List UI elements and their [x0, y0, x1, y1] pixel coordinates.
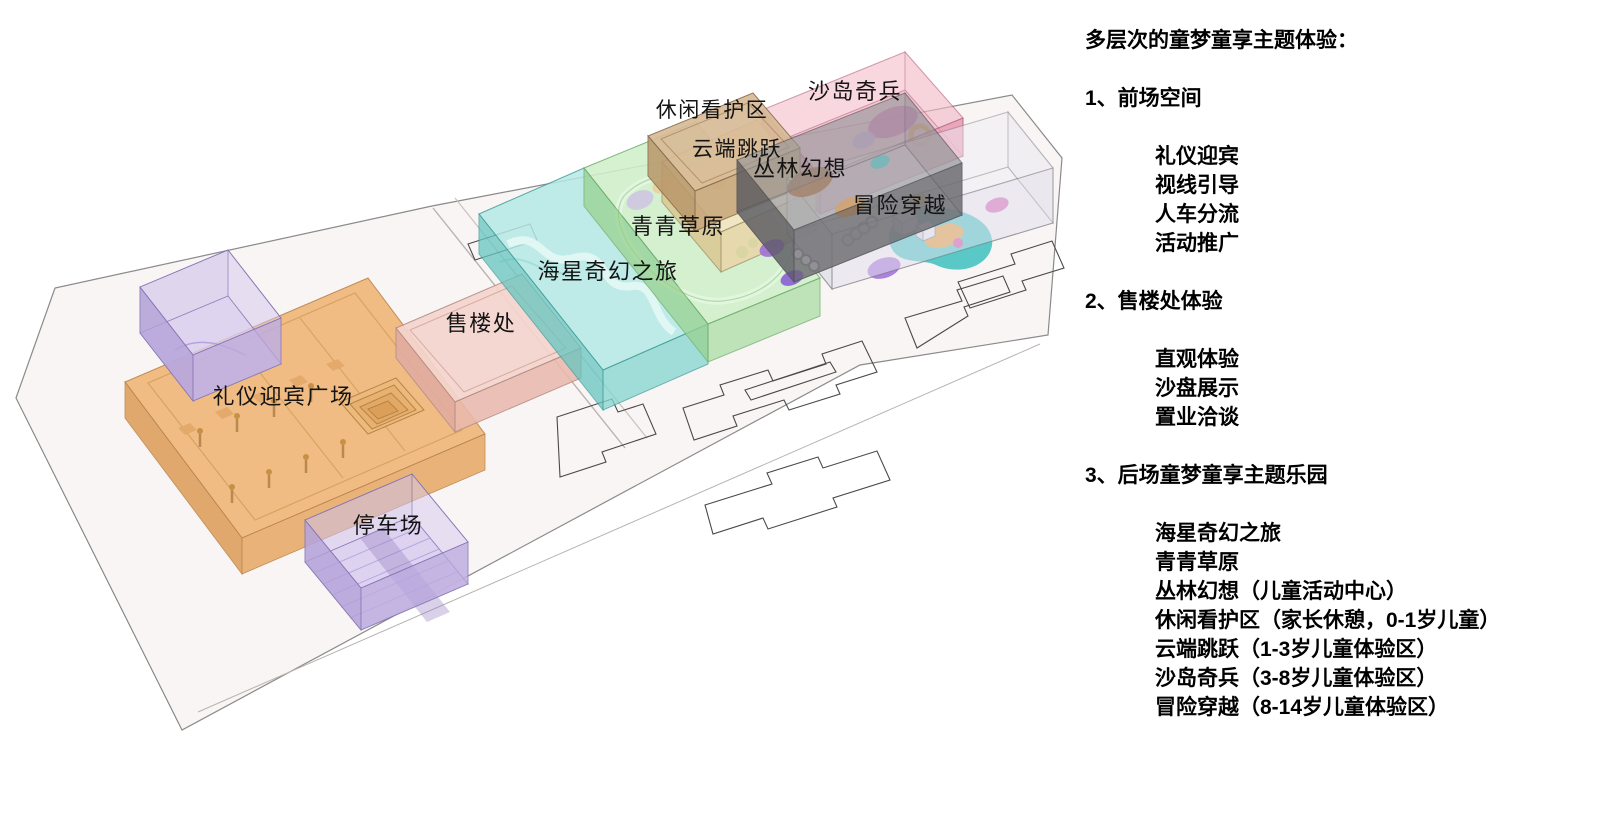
label-care-zone: 休闲看护区	[656, 98, 769, 122]
label-sales-office: 售楼处	[446, 311, 517, 336]
label-parking: 停车场	[353, 513, 424, 538]
legend-item: 沙岛奇兵（3-8岁儿童体验区）	[1155, 664, 1575, 693]
legend-heading: 2、售楼处体验	[1085, 287, 1575, 316]
legend-title: 多层次的童梦童享主题体验：	[1085, 26, 1575, 55]
label-sand-island: 沙岛奇兵	[808, 79, 902, 104]
legend-item: 海星奇幻之旅	[1155, 519, 1575, 548]
legend-item: 冒险穿越（8-14岁儿童体验区）	[1155, 693, 1575, 722]
legend-panel: 多层次的童梦童享主题体验： 1、前场空间 礼仪迎宾 视线引导 人车分流 活动推广…	[1085, 26, 1575, 722]
legend-item: 人车分流	[1155, 200, 1575, 229]
legend-item: 青青草原	[1155, 548, 1575, 577]
label-welcome-plaza: 礼仪迎宾广场	[212, 384, 353, 409]
legend-item: 视线引导	[1155, 171, 1575, 200]
label-adventure-cross: 冒险穿越	[853, 193, 947, 218]
legend-section-sales: 2、售楼处体验 直观体验 沙盘展示 置业洽谈	[1085, 287, 1575, 432]
legend-item: 直观体验	[1155, 345, 1575, 374]
legend-heading: 3、后场童梦童享主题乐园	[1085, 461, 1575, 490]
legend-item: 置业洽谈	[1155, 403, 1575, 432]
legend-item: 礼仪迎宾	[1155, 142, 1575, 171]
label-jungle-fantasy: 丛林幻想	[753, 156, 847, 181]
legend-item: 丛林幻想（儿童活动中心）	[1155, 577, 1575, 606]
legend-item: 休闲看护区（家长休憩，0-1岁儿童）	[1155, 606, 1575, 635]
legend-section-park: 3、后场童梦童享主题乐园 海星奇幻之旅 青青草原 丛林幻想（儿童活动中心） 休闲…	[1085, 461, 1575, 722]
label-starfish-journey: 海星奇幻之旅	[537, 259, 678, 284]
footprint-outline	[705, 451, 890, 534]
legend-item: 活动推广	[1155, 229, 1575, 258]
site-diagram: 礼仪迎宾广场 停车场 售楼处 海星奇幻之旅 青青草原 休闲看护区 云端跳跃 沙岛…	[0, 0, 1080, 816]
label-green-meadow: 青青草原	[631, 214, 725, 239]
legend-item: 云端跳跃（1-3岁儿童体验区）	[1155, 635, 1575, 664]
legend-section-front: 1、前场空间 礼仪迎宾 视线引导 人车分流 活动推广	[1085, 84, 1575, 258]
legend-heading: 1、前场空间	[1085, 84, 1575, 113]
legend-item: 沙盘展示	[1155, 374, 1575, 403]
